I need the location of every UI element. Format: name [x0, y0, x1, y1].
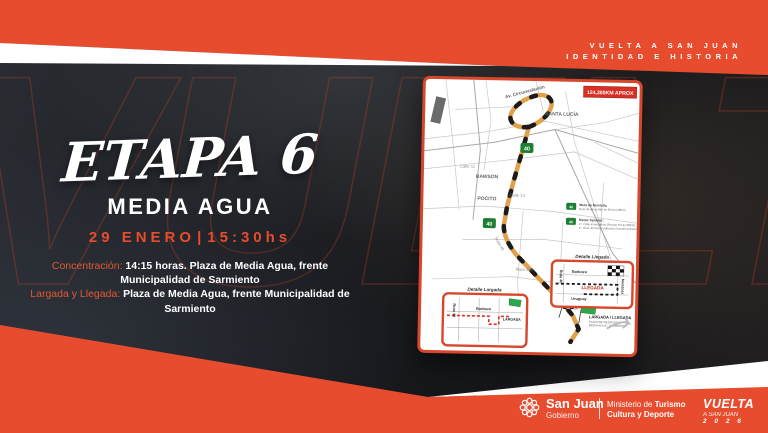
llegada-inset-flag-icon	[608, 266, 624, 276]
gov-sub: Gobierno	[546, 412, 604, 420]
concentracion-line: Concentración: 14:15 horas. Plaza de Med…	[16, 259, 364, 287]
largada-label: Largada y Llegada:	[30, 288, 120, 300]
poster-canvas: VUELTA VUELTA A SAN JUAN IDENTIDAD E HIS…	[0, 0, 768, 433]
gov-name: San Juan	[546, 397, 604, 410]
svg-text:40: 40	[486, 222, 492, 228]
label-pocito: POCITO	[477, 196, 496, 202]
svg-text:40: 40	[569, 220, 573, 224]
llegada-inset-street2: Uruguay	[571, 297, 587, 301]
legend-item2-line2: 2°- Ruta 40 frente Vallecitos Grandes (C…	[579, 226, 640, 232]
event-tagline: VUELTA A SAN JUAN IDENTIDAD E HISTORIA	[566, 41, 742, 63]
label-ruta-295: Ruta 295	[516, 267, 534, 272]
stage-date: 29 ENERO	[89, 229, 195, 246]
main-roads	[422, 79, 640, 283]
stage-location: MEDIA AGUA	[16, 194, 364, 220]
distance-badge: 124,300KM APROX	[584, 86, 637, 98]
label-santa-lucia: SANTA LUCÍA	[545, 109, 579, 118]
route-shield-2: 40	[483, 218, 496, 228]
llegada-inset-ruta: Ruta 40	[559, 270, 563, 284]
gov-wordmark: San Juan Gobierno	[546, 397, 604, 420]
largada-text: Plaza de Media Agua, frente Municipalida…	[120, 288, 350, 314]
event-name: VUELTA	[703, 398, 754, 411]
ministry-line2: Cultura y Deporte	[607, 410, 686, 420]
stage-time: 15:30hs	[207, 229, 291, 246]
label-rawson: RAWSON	[476, 174, 499, 180]
label-ruta-40: Ruta 40	[494, 236, 506, 252]
stage-details: Concentración: 14:15 horas. Plaza de Med…	[16, 259, 364, 316]
llegada-inset-street: Barboza	[572, 270, 588, 274]
map-legend: 40 Meta de Montaña Ruta 40 altura Alto d…	[566, 203, 640, 232]
llegada-inset-street3: Mendoza	[620, 279, 624, 295]
detalle-largada-title: Detalle Largada	[467, 287, 502, 293]
route-map: 124,300KM APROX 40 40 Av. Circunvalación…	[420, 79, 640, 354]
llegada-inset-marker: LLEGADA	[581, 285, 604, 290]
largada-line: Largada y Llegada: Plaza de Media Agua, …	[16, 287, 364, 315]
svg-text:40: 40	[524, 146, 530, 152]
event-year: 2 0 2 6	[703, 419, 754, 426]
concentracion-label: Concentración:	[52, 260, 123, 272]
largada-inset-street: Barboza	[476, 307, 492, 311]
stage-block: ETAPA 6 MEDIA AGUA 29 ENERO|15:30hs Conc…	[16, 131, 364, 316]
event-sub: A SAN JUAN	[703, 412, 754, 418]
concentracion-text: 14:15 horas. Plaza de Media Agua, frente…	[120, 260, 328, 286]
tagline-line2: IDENTIDAD E HISTORIA	[566, 52, 742, 63]
ministry-wordmark: Ministerio de Turismo Cultura y Deporte	[607, 400, 686, 421]
stage-title: ETAPA 6	[14, 125, 367, 191]
label-calle-11: Calle 11	[460, 164, 476, 169]
datetime-separator: |	[195, 229, 207, 246]
route-map-card: 124,300KM APROX 40 40 Av. Circunvalación…	[417, 76, 643, 358]
stage-datetime: 29 ENERO|15:30hs	[16, 229, 364, 246]
svg-text:40: 40	[569, 205, 573, 209]
largada-inset-marker: LARGADA	[503, 317, 521, 321]
largada-inset-ruta: Ruta 40	[452, 303, 456, 317]
terrain-patch	[430, 96, 446, 124]
ministry-line1: Ministerio de Turismo	[607, 400, 686, 410]
distance-badge-text: 124,300KM APROX	[587, 90, 634, 97]
legend-item1-line: Ruta 40 altura Alto de Sierra (39Km)	[579, 207, 626, 212]
detalle-largada-inset: Detalle Largada Ruta 40 Barboza LARGADA	[442, 286, 527, 347]
label-calle-14: Calle 14	[509, 193, 525, 198]
detalle-llegada-inset: Detalle Llegada Ruta 40 Barboza Uruguay …	[551, 253, 633, 308]
detalle-llegada-title: Detalle Llegada	[575, 254, 609, 260]
vuelta-san-juan-logo: VUELTA A SAN JUAN 2 0 2 6	[703, 398, 754, 425]
tagline-line1: VUELTA A SAN JUAN	[566, 41, 742, 52]
route-shield-1: 40	[520, 143, 533, 153]
footer-divider	[599, 398, 600, 419]
san-juan-gov-logo-icon	[518, 396, 541, 419]
